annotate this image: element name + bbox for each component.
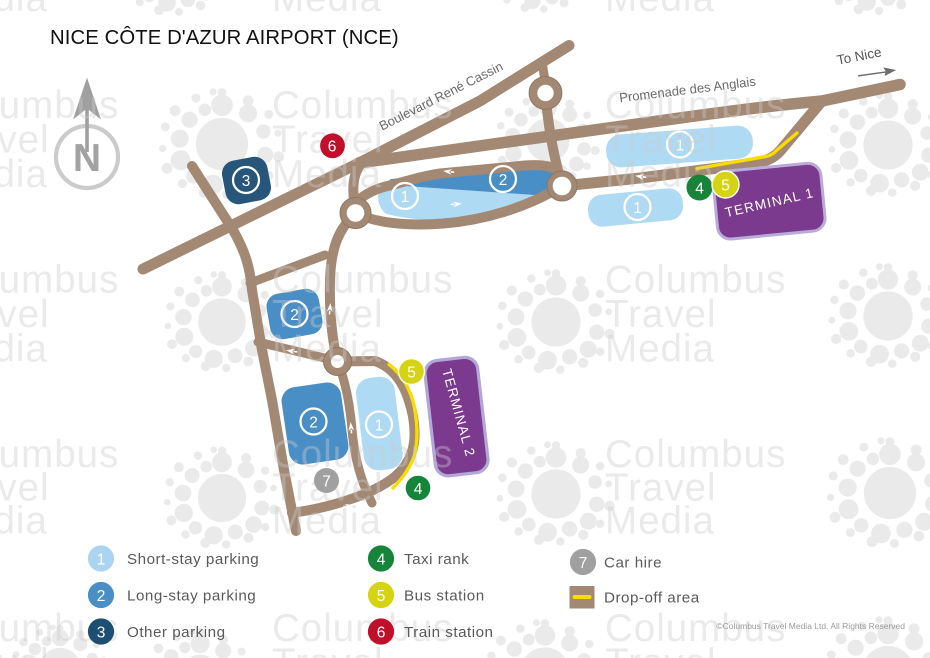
svg-text:Bus station: Bus station [404, 588, 485, 605]
svg-text:Travel: Travel [605, 642, 717, 658]
svg-text:4: 4 [377, 552, 386, 569]
svg-text:Travel: Travel [0, 642, 50, 658]
svg-text:7: 7 [579, 555, 588, 572]
svg-text:Long-stay parking: Long-stay parking [127, 588, 256, 605]
svg-text:Media: Media [605, 0, 715, 20]
svg-text:6: 6 [328, 139, 337, 156]
svg-text:4: 4 [695, 181, 704, 198]
svg-text:6: 6 [377, 625, 386, 642]
svg-text:Media: Media [272, 500, 382, 543]
svg-text:Media: Media [605, 500, 715, 543]
svg-text:2: 2 [309, 415, 318, 432]
svg-text:©Columbus Travel Media Ltd. Al: ©Columbus Travel Media Ltd. All Rights R… [716, 621, 905, 631]
svg-text:Train station: Train station [404, 624, 494, 641]
svg-text:Short-stay parking: Short-stay parking [127, 551, 259, 568]
svg-text:Media: Media [0, 500, 48, 543]
svg-text:Travel: Travel [272, 642, 384, 658]
svg-text:Media: Media [272, 153, 382, 196]
svg-text:NICE CÔTE D'AZUR AIRPORT (NCE): NICE CÔTE D'AZUR AIRPORT (NCE) [50, 26, 399, 49]
svg-text:Media: Media [0, 0, 48, 20]
svg-text:Media: Media [272, 0, 382, 20]
svg-text:N: N [73, 137, 101, 180]
svg-text:Other parking: Other parking [127, 624, 226, 641]
svg-text:4: 4 [414, 481, 423, 498]
svg-text:Media: Media [0, 153, 48, 196]
svg-text:1: 1 [401, 189, 410, 206]
svg-text:1: 1 [633, 200, 642, 217]
svg-text:3: 3 [242, 173, 251, 190]
svg-text:3: 3 [97, 625, 106, 642]
svg-text:1: 1 [375, 418, 384, 435]
svg-text:2: 2 [97, 588, 106, 605]
svg-text:2: 2 [499, 172, 508, 189]
svg-text:Media: Media [272, 328, 382, 371]
svg-text:Drop-off area: Drop-off area [604, 590, 700, 607]
svg-text:7: 7 [322, 474, 331, 491]
svg-text:Media: Media [0, 328, 48, 371]
svg-text:1: 1 [97, 552, 106, 569]
svg-text:5: 5 [721, 178, 730, 195]
svg-text:Taxi rank: Taxi rank [404, 551, 469, 568]
svg-text:Car hire: Car hire [604, 555, 662, 572]
svg-text:5: 5 [407, 365, 416, 382]
svg-text:Media: Media [605, 328, 715, 371]
svg-text:5: 5 [377, 588, 386, 605]
